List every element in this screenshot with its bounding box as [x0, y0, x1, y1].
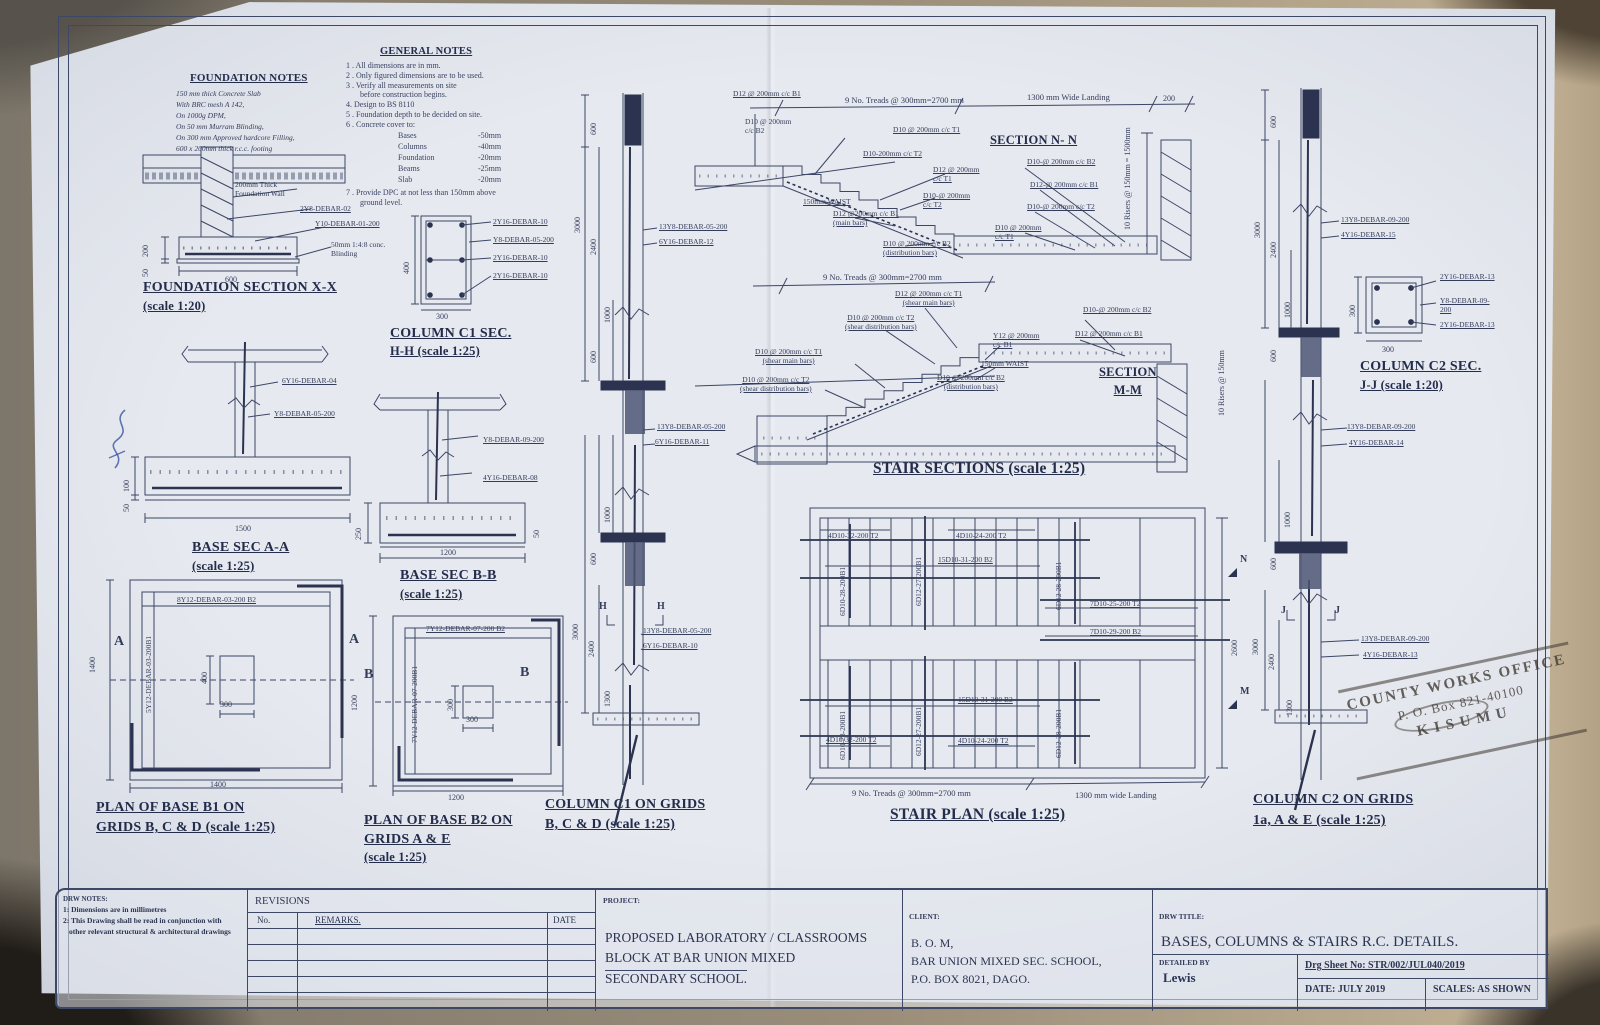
dim: 1200 — [440, 548, 456, 557]
scanned-drawing-sheet: FOUNDATION NOTES 150 mm thick Concrete S… — [0, 0, 1600, 1025]
section-name: SECTION M-M — [1099, 364, 1157, 399]
note-line: On 50 mm Murram Blinding, — [176, 123, 264, 132]
drawing-title: COLUMN C2 SEC. — [1360, 359, 1481, 375]
rebar-label: 2Y8-DEBAR-02 — [300, 205, 351, 214]
drawing-title: COLUMN C1 ON GRIDS — [545, 797, 705, 813]
rebar-label: D10-@ 200mm c/c B2 — [1027, 158, 1095, 167]
dim: 600 — [1269, 558, 1278, 570]
dim: 300 — [466, 715, 478, 724]
rebar-label: Y10-DEBAR-01-200 — [315, 220, 380, 229]
drawing-scale: J-J (scale 1:20) — [1360, 378, 1443, 393]
rebar-label: D10 @ 200mm c/c T2 (shear distribution b… — [740, 376, 812, 394]
drw-note-line: other relevant structural & architectura… — [69, 927, 231, 936]
dim: 600 — [1269, 116, 1278, 128]
dim: 10 Risers @ 150mm = 1500mm — [1123, 127, 1132, 230]
note-line: 5 . Foundation depth to be decided on si… — [346, 110, 482, 120]
rebar-label: 2Y16-DEBAR-13 — [1440, 273, 1495, 282]
section-marker: H — [657, 601, 665, 612]
rebar-label: D12 @ 200mm c/c T1 — [933, 166, 980, 184]
dim: 1200 — [350, 695, 359, 711]
revisions-header: REVISIONS — [255, 896, 310, 907]
rebar-label: D10-200mm c/c T2 — [863, 150, 922, 159]
rebar-label: Y8-DEBAR-09-200 — [1440, 297, 1500, 315]
section-name: SECTION N- N — [990, 133, 1077, 148]
dim: 400 — [200, 672, 209, 684]
rebar-label: 2Y16-DEBAR-10 — [493, 272, 548, 281]
dim-label: 1300 mm wide Landing — [1075, 790, 1156, 800]
dim-label: 1300 mm Wide Landing — [1027, 92, 1110, 102]
note-line: 4. Design to BS 8110 — [346, 100, 414, 110]
dim: 3000 — [573, 217, 582, 233]
dim-label: 9 No. Treads @ 300mm=2700 mm — [845, 95, 964, 105]
section-marker: H — [599, 601, 607, 612]
note-line: 150 mm thick Concrete Slab — [176, 90, 261, 99]
blinding-label: 50mm 1:4:8 conc. Blinding — [331, 241, 385, 259]
note-line: With BRC mesh A 142, — [176, 101, 244, 110]
detailed-by-label: DETAILED BY — [1159, 958, 1210, 967]
drawing-title: BASE SEC B-B — [400, 568, 497, 584]
dim: 600 — [589, 123, 598, 135]
rebar-label: 6Y16-DEBAR-10 — [643, 642, 698, 651]
rebar-label: 4Y16-DEBAR-08 — [483, 474, 538, 483]
dim: 2400 — [1267, 654, 1276, 670]
plan-base-b1-art — [102, 558, 362, 793]
wall-label: 200mm Thick Foundation Wall — [235, 181, 285, 199]
stair-sections-title: STAIR SECTIONS (scale 1:25) — [873, 460, 1085, 478]
rebar-label: D10-@ 200mm c/c B2 — [1083, 306, 1151, 315]
rebar-label: D12 @ 200mm c/c B1 — [1075, 330, 1143, 339]
rebar-label: 13Y8-DEBAR-09-200 — [1341, 216, 1409, 225]
title-block: DRW NOTES: 1: Dimensions are in millimet… — [55, 888, 1548, 1009]
rebar-label: Y8-DEBAR-09-200 — [483, 436, 544, 445]
section-marker: B — [364, 667, 373, 683]
dim: 600 — [589, 351, 598, 363]
rebar-label: 15D10-31-200 B2 — [938, 556, 993, 565]
foundation-notes-title: FOUNDATION NOTES — [190, 72, 308, 84]
client-label: CLIENT: — [909, 912, 940, 921]
dim: 50 — [532, 530, 541, 538]
rebar-label: 15D10-31-200 B2 — [958, 696, 1013, 705]
drawing-title: GRIDS B, C & D (scale 1:25) — [96, 820, 275, 836]
drawing-scale: (scale 1:25) — [364, 850, 426, 865]
rebar-label: 6D12-27-200B1 — [914, 557, 923, 606]
drawing-title: 1a, A & E (scale 1:25) — [1253, 813, 1386, 829]
pen-mark — [105, 408, 139, 474]
sheet-no: Drg Sheet No: STR/002/JUL040/2019 — [1305, 960, 1465, 971]
dim: 300 — [1382, 345, 1394, 354]
rebar-label: 4D10-32-200 T2 — [828, 532, 878, 541]
dim: 1000 — [603, 507, 612, 523]
rebar-label: 7D10-29-200 B2 — [1090, 628, 1141, 637]
rebar-label: 4Y16-DEBAR-15 — [1341, 231, 1396, 240]
dim: 1200 — [448, 793, 464, 802]
rebar-label: D10-@ 200mm c/c T2 — [923, 192, 970, 210]
dim: 10 Risers @ 150mm — [1217, 350, 1226, 416]
drw-notes-label: DRW NOTES: — [63, 895, 108, 903]
rebar-label: 2Y16-DEBAR-13 — [1440, 321, 1495, 330]
drawing-title: PLAN OF BASE B2 ON — [364, 813, 513, 829]
rebar-label: 4D10-32-200 T2 — [826, 736, 876, 745]
rebar-label: 6D12-28-200B1 — [1054, 709, 1063, 758]
rebar-label: 4D10-24-200 T2 — [958, 737, 1008, 746]
rebar-label: D10 @ 200mm c/c T1 (shear main bars) — [755, 348, 822, 366]
rebar-label: D12 @ 200mm c/c T1 (shear main bars) — [895, 290, 962, 308]
rebar-label: 7Y12-DEBAR-07-200B1 — [410, 666, 419, 743]
rebar-label: 4D10-24-200 T2 — [956, 532, 1006, 541]
rebar-label: 6D12-27-200B1 — [914, 707, 923, 756]
drw-note-line: 1: Dimensions are in millimetres — [63, 905, 166, 914]
rebar-label: D10 @ 200mm c/c B2 — [745, 118, 792, 136]
rebar-label: Y12 @ 200mm c/c B1 — [993, 332, 1040, 350]
stair-section-mm: 9 No. Treads @ 300mm=2700 mm D12 @ 200mm… — [695, 268, 1240, 483]
rebar-label: D12-@ 200mm c/c B1 — [1030, 181, 1098, 190]
dim: 400 — [402, 262, 411, 274]
rebar-label: 6Y16-DEBAR-04 — [282, 377, 337, 386]
rebar-label: D10 @ 200mm c/c B2 (distribution bars) — [937, 374, 1005, 392]
waist-label: 150mm WAIST — [803, 198, 851, 207]
rebar-label: D12 @ 200mm c/c B1 — [733, 90, 801, 99]
rebar-label: 4Y16-DEBAR-14 — [1349, 439, 1404, 448]
column-c1-section-art — [413, 212, 483, 312]
revisions-col-remarks: REMARKS. — [315, 915, 361, 925]
dim: 1300 — [1285, 700, 1294, 716]
dim: 1000 — [1283, 302, 1292, 318]
rebar-label: 4Y16-DEBAR-13 — [1363, 651, 1418, 660]
section-marker: J — [1281, 605, 1286, 616]
dim: 2400 — [589, 239, 598, 255]
revisions-col-no: No. — [257, 915, 270, 925]
drawing-scale: (scale 1:20) — [143, 299, 205, 314]
rebar-label: D10-@ 200mm c/c T2 — [1027, 203, 1095, 212]
dim: 100 — [122, 480, 131, 492]
drw-title-value: BASES, COLUMNS & STAIRS R.C. DETAILS. — [1161, 934, 1458, 951]
stair-plan: 4D10-32-200 T2 6D10-28-200B1 6D12-27-200… — [790, 488, 1260, 838]
rebar-label: 6D12 28-200B1 — [1054, 561, 1063, 610]
rebar-label: D10 @ 200mm c/c T1 — [893, 126, 960, 135]
note-line: 1 . All dimensions are in mm. — [346, 61, 441, 71]
revisions-col-date: DATE — [553, 915, 576, 925]
rebar-label: D10 @ 200mm c/c T1 — [995, 224, 1042, 242]
dim: 300 — [220, 700, 232, 709]
dim: 2400 — [587, 641, 596, 657]
client-line: BAR UNION MIXED SEC. SCHOOL, — [911, 954, 1102, 969]
rebar-label: 13Y8-DEBAR-09-200 — [1361, 635, 1429, 644]
note-line: before construction begins. — [360, 90, 447, 100]
dim: 600 — [1269, 350, 1278, 362]
rebar-label: Y8-DEBAR-05-200 — [274, 410, 335, 419]
project-label: PROJECT: — [603, 896, 640, 905]
dim-label: 9 No. Treads @ 300mm=2700 mm — [852, 788, 971, 798]
dim-label: 9 No. Treads @ 300mm=2700 mm — [823, 272, 942, 282]
dim: 1000 — [1283, 512, 1292, 528]
rebar-label: 7D10-25-200 T2 — [1090, 600, 1140, 609]
rebar-label: 2Y16-DEBAR-10 — [493, 218, 548, 227]
rebar-label: 5Y12-DEBAR-03-200B1 — [144, 636, 153, 713]
note-line: On 1000g DPM, — [176, 112, 226, 121]
dim: 300 — [436, 312, 448, 321]
note-line: 6 . Concrete cover to: — [346, 120, 415, 130]
rebar-label: 7Y12-DEBAR-07-200 B2 — [426, 625, 505, 634]
drawing-title: GRIDS A & E — [364, 832, 451, 848]
client-line: B. O. M, — [911, 936, 953, 951]
plan-base-b1: 8Y12-DEBAR-03-200 B2 5Y12-DEBAR-03-200B1… — [92, 548, 387, 843]
dim: 300 — [446, 699, 455, 711]
rebar-label: 13Y8-DEBAR-05-200 — [643, 627, 711, 636]
stair-section-nn: D12 @ 200mm c/c B1 D10 @ 200mm c/c B2 9 … — [695, 78, 1240, 273]
project-line: BLOCK AT BAR UNION MIXED — [605, 950, 795, 966]
dim: 1000 — [603, 307, 612, 323]
dim: 1400 — [210, 780, 226, 789]
dim: 3000 — [571, 624, 580, 640]
dim: 200 — [141, 245, 150, 257]
drw-title-label: DRW TITLE: — [1159, 912, 1204, 921]
column-c2-section: 2Y16-DEBAR-13 Y8-DEBAR-09-200 2Y16-DEBAR… — [1350, 265, 1500, 390]
dim: 250 — [354, 528, 363, 540]
dim: 1300 — [603, 691, 612, 707]
dim: 3000 — [1253, 222, 1262, 238]
rebar-label: D10 @ 200mm c/c T2 (shear distribution b… — [845, 314, 917, 332]
note-line: 2 . Only figured dimensions are to be us… — [346, 71, 484, 81]
column-c2-section-art — [1362, 273, 1432, 343]
dim: 2400 — [1269, 242, 1278, 258]
project-line: SECONDARY SCHOOL. — [605, 970, 747, 987]
detailed-by-value: Lewis — [1163, 970, 1196, 986]
rebar-label: 2Y16-DEBAR-10 — [493, 254, 548, 263]
rebar-label: D10 @ 200mm c/c B2 (distribution bars) — [883, 240, 951, 258]
rebar-label: 6D10-28-200B1 — [838, 567, 847, 616]
client-line: P.O. BOX 8021, DAGO. — [911, 972, 1030, 987]
drawing-title: FOUNDATION SECTION X-X — [143, 280, 337, 296]
sheet-scales: SCALES: AS SHOWN — [1433, 984, 1531, 995]
drawing-title: B, C & D (scale 1:25) — [545, 817, 675, 833]
dim: 3000 — [1251, 639, 1260, 655]
stair-plan-title: STAIR PLAN (scale 1:25) — [890, 806, 1065, 824]
base-sec-aa-art — [130, 332, 380, 532]
rebar-label: 13Y8-DEBAR-09-200 — [1347, 423, 1415, 432]
dim: 600 — [589, 553, 598, 565]
dim: 50 — [122, 504, 131, 512]
drawing-title: COLUMN C2 ON GRIDS — [1253, 792, 1413, 808]
drw-note-line: 2: This Drawing shall be read in conjunc… — [63, 916, 222, 925]
project-line: PROPOSED LABORATORY / CLASSROOMS — [605, 930, 867, 946]
dim: 50 — [141, 269, 150, 277]
rebar-label: 8Y12-DEBAR-03-200 B2 — [177, 596, 256, 605]
dim: 1500 — [235, 524, 251, 533]
drawing-title: PLAN OF BASE B1 ON — [96, 800, 245, 816]
general-notes-title: GENERAL NOTES — [380, 46, 472, 57]
dim: 200 — [1163, 94, 1175, 103]
section-marker: B — [520, 665, 529, 681]
section-marker: A — [114, 634, 124, 650]
section-marker: J — [1335, 605, 1340, 616]
dim: 300 — [1348, 305, 1357, 317]
sheet-date: DATE: JULY 2019 — [1305, 984, 1385, 995]
dim: 1400 — [88, 657, 97, 673]
waist-label: 150mm WAIST — [981, 360, 1029, 369]
rebar-label: D12 @200mm c/c B1 (main bars) — [833, 210, 899, 228]
